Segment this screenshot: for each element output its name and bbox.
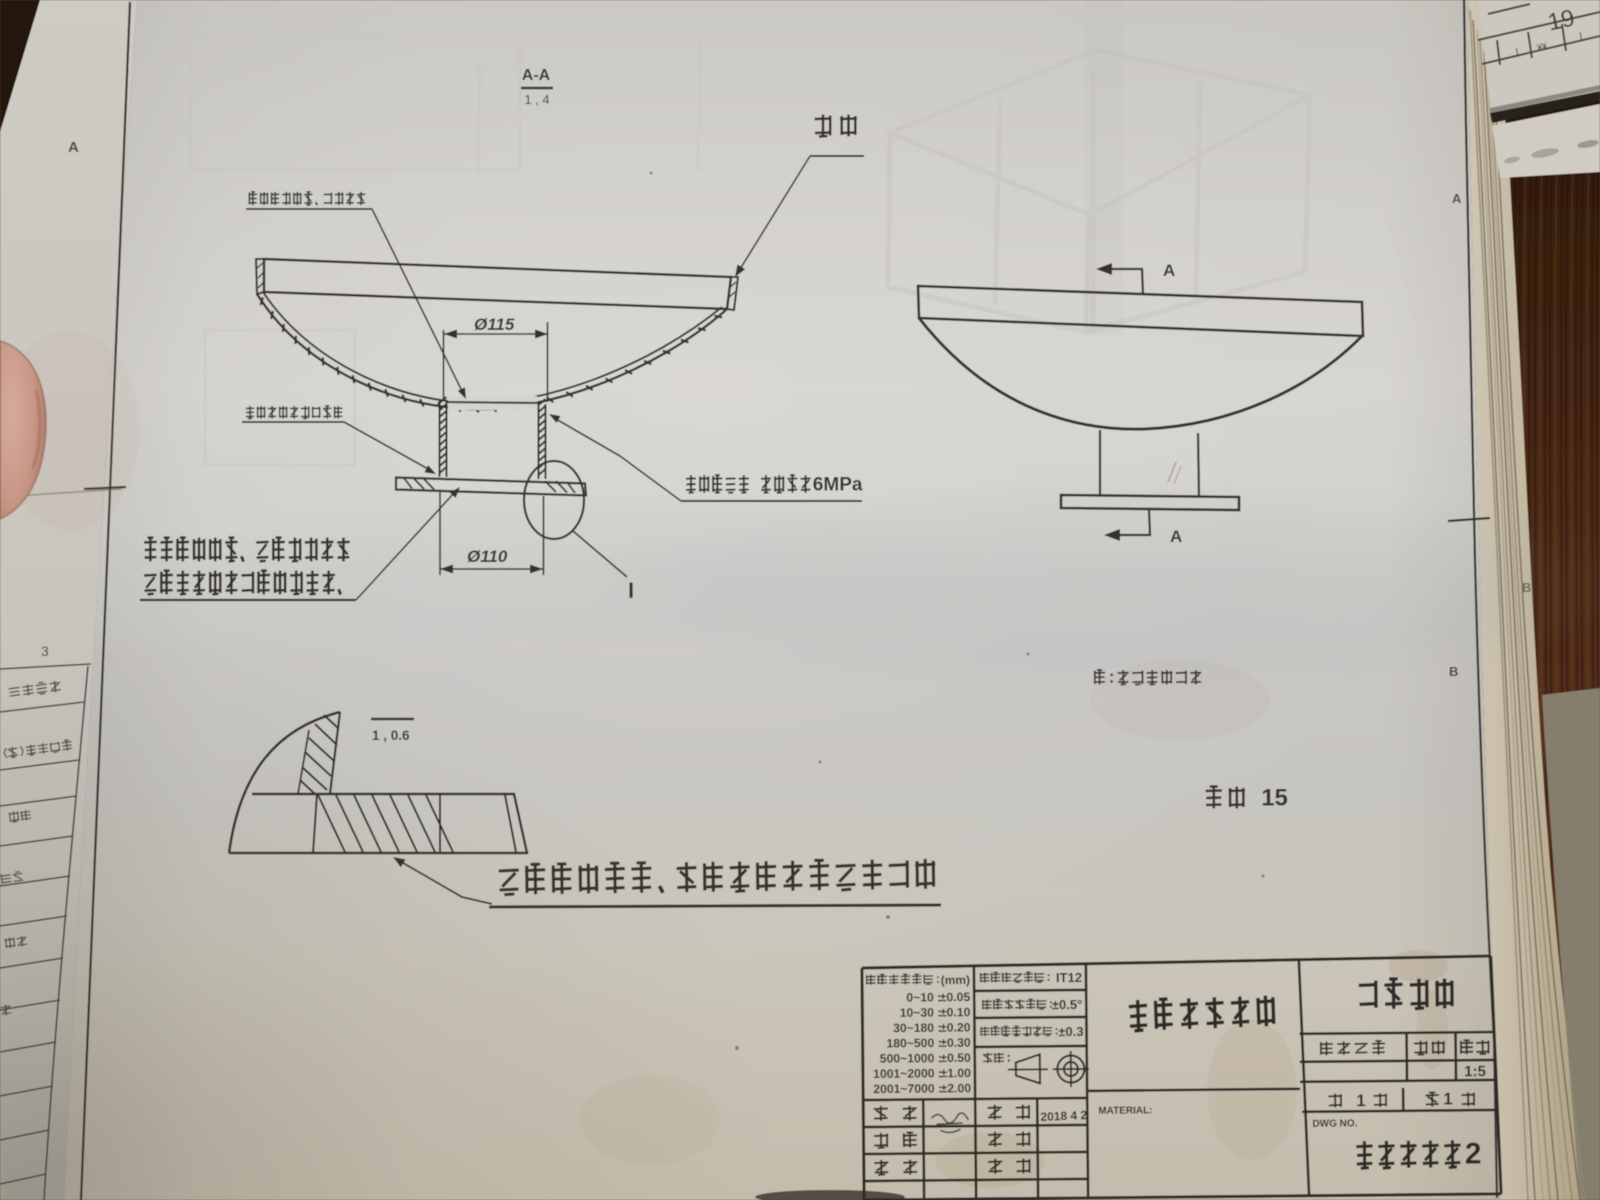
svg-text:DWG NO.: DWG NO. <box>1312 1118 1357 1129</box>
svg-text:2018 4 2: 2018 4 2 <box>1040 1108 1088 1124</box>
svg-text:1: 1 <box>1443 1089 1453 1108</box>
svg-text:I: I <box>628 578 634 603</box>
svg-text:30~180 :: 30~180 : <box>893 1021 942 1035</box>
svg-text:3: 3 <box>41 643 49 659</box>
svg-text:500~1000 :: 500~1000 : <box>880 1051 942 1066</box>
svg-text:A: A <box>1163 261 1175 280</box>
svg-text:±0.30: ±0.30 <box>940 1036 971 1050</box>
svg-text:MATERIAL:: MATERIAL: <box>1098 1105 1152 1117</box>
svg-text:2001~7000 :: 2001~7000 : <box>873 1081 942 1096</box>
svg-text:15: 15 <box>1261 785 1288 812</box>
svg-text:±0.10: ±0.10 <box>940 1005 971 1019</box>
svg-text:±0.20: ±0.20 <box>940 1020 971 1034</box>
svg-text:B: B <box>1522 580 1531 595</box>
svg-text:10~30 :: 10~30 : <box>900 1005 942 1019</box>
svg-text:(mm): (mm) <box>941 973 970 987</box>
svg-text:1:5: 1:5 <box>1464 1063 1486 1080</box>
svg-text:2: 2 <box>1465 1138 1482 1171</box>
svg-text:6MPa: 6MPa <box>813 474 863 495</box>
svg-text:Ø110: Ø110 <box>467 547 508 566</box>
svg-text:B: B <box>1449 664 1458 679</box>
svg-text:A: A <box>68 139 79 156</box>
svg-text:±1.00: ±1.00 <box>940 1066 971 1080</box>
svg-text:0~10 :: 0~10 : <box>906 990 941 1004</box>
svg-text:1 , 0.6: 1 , 0.6 <box>372 728 410 743</box>
svg-text:1 , 4: 1 , 4 <box>524 92 549 107</box>
svg-text:A: A <box>1452 191 1462 206</box>
svg-text:A-A: A-A <box>522 67 551 84</box>
svg-text:±2.00: ±2.00 <box>941 1081 972 1095</box>
svg-text:±0.05: ±0.05 <box>940 990 971 1004</box>
svg-text:180~500 :: 180~500 : <box>886 1036 941 1051</box>
svg-text:±0.3: ±0.3 <box>1058 1024 1083 1039</box>
svg-text:±0.5°: ±0.5° <box>1052 997 1083 1012</box>
svg-text:1001~2000 :: 1001~2000 : <box>873 1066 942 1081</box>
svg-text:1: 1 <box>1356 1091 1366 1110</box>
svg-text:A: A <box>1170 527 1182 546</box>
svg-text:IT12: IT12 <box>1056 970 1082 985</box>
svg-text:±0.50: ±0.50 <box>940 1051 971 1065</box>
svg-text:Ø115: Ø115 <box>474 315 515 334</box>
